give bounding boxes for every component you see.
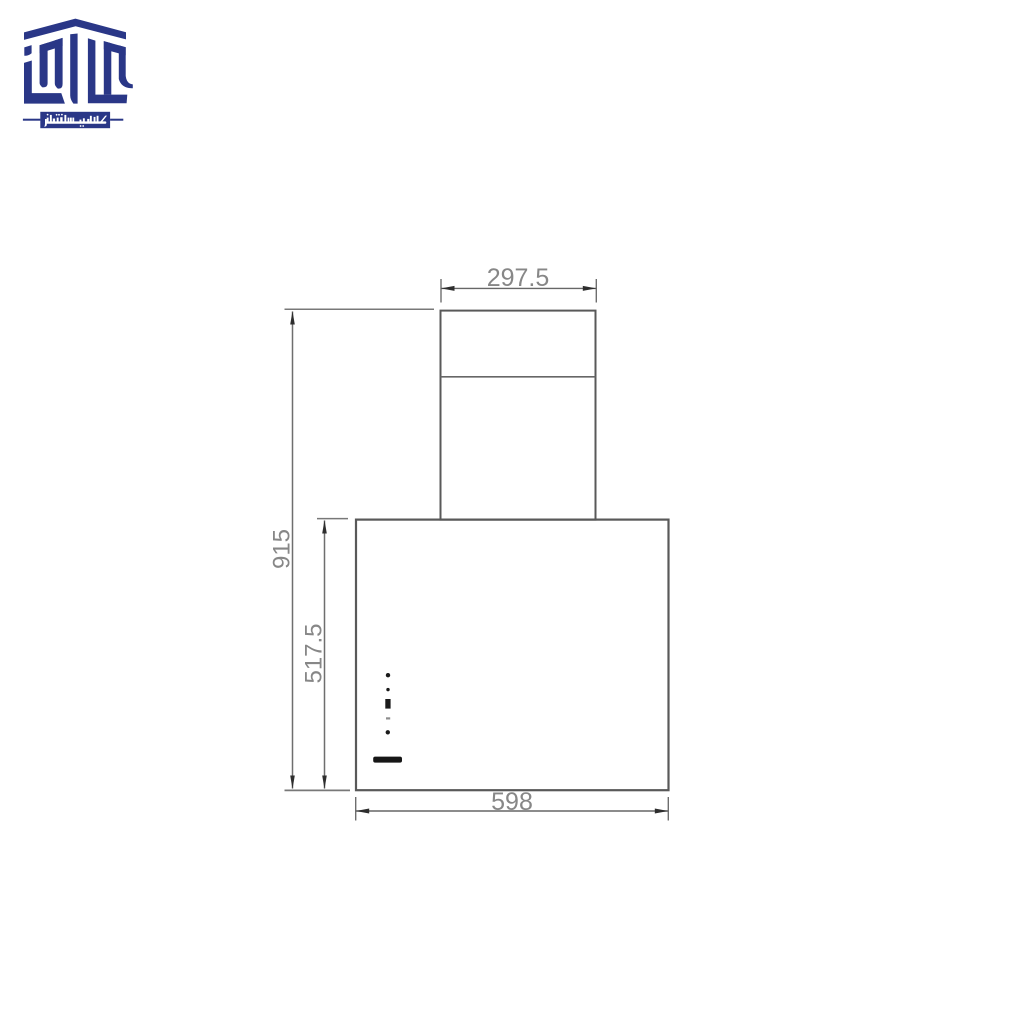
svg-text:517.5: 517.5 (301, 623, 328, 683)
svg-text:297.5: 297.5 (487, 264, 550, 292)
svg-text:598: 598 (491, 788, 533, 816)
svg-text:915: 915 (269, 529, 296, 569)
